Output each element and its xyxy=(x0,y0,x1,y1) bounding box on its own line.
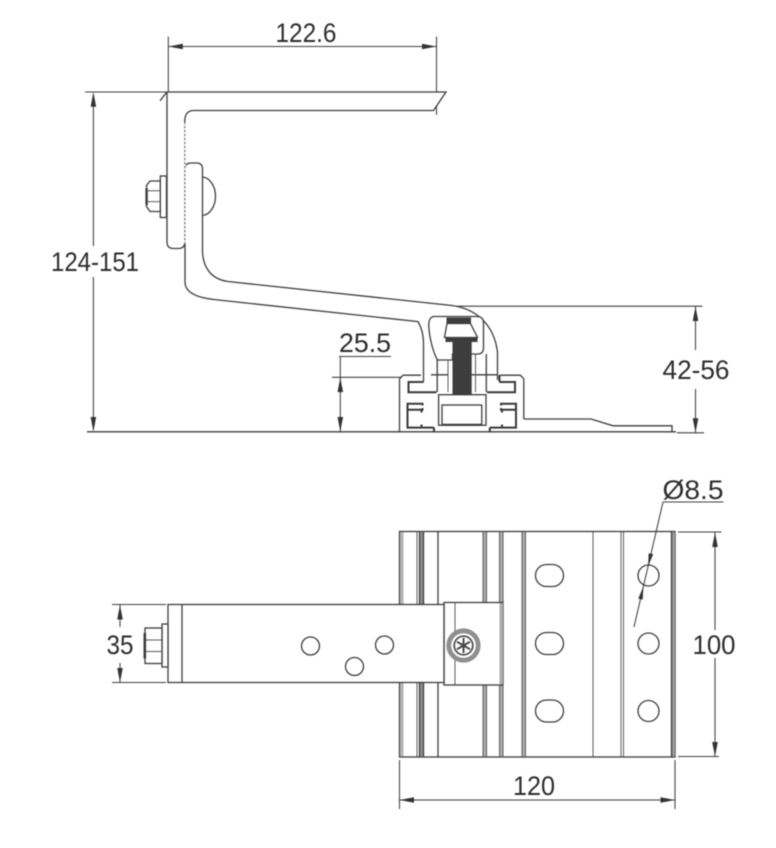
svg-text:100: 100 xyxy=(693,630,736,660)
svg-text:25.5: 25.5 xyxy=(339,328,391,358)
svg-text:Ø8.5: Ø8.5 xyxy=(663,475,724,505)
svg-text:120: 120 xyxy=(513,771,555,801)
svg-text:122.6: 122.6 xyxy=(276,18,337,48)
svg-text:42-56: 42-56 xyxy=(663,355,730,385)
svg-text:124-151: 124-151 xyxy=(51,247,139,277)
svg-text:35: 35 xyxy=(107,630,134,660)
